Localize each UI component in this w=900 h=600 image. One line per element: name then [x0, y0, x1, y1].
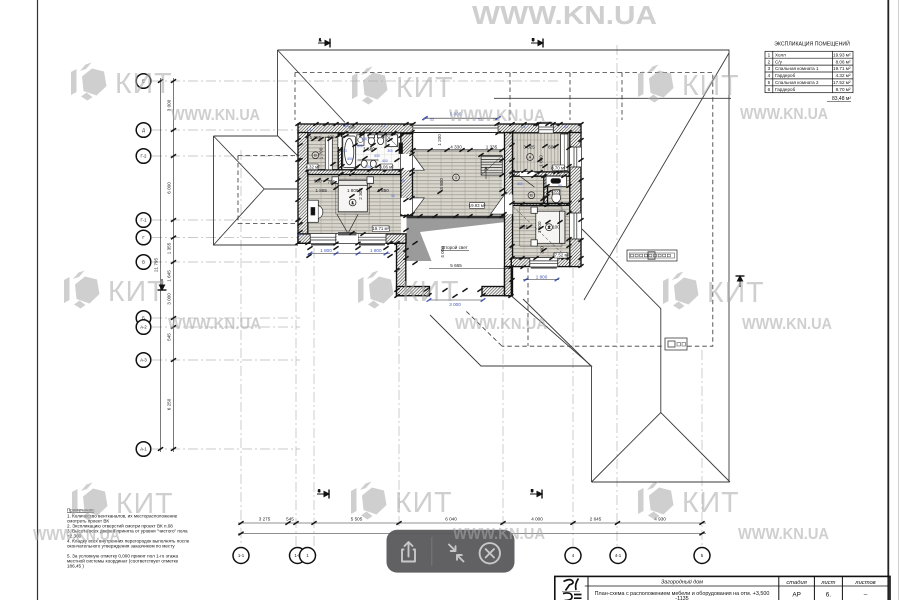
svg-text:Гардероб: Гардероб: [775, 87, 796, 92]
svg-text:21 795: 21 795: [154, 258, 159, 272]
svg-text:8.70 м²: 8.70 м²: [836, 87, 851, 92]
svg-text:3 000: 3 000: [167, 293, 172, 305]
svg-text:А-1: А-1: [140, 447, 147, 452]
svg-text:Д: Д: [142, 128, 145, 133]
svg-text:19.71 м²: 19.71 м²: [833, 66, 851, 71]
svg-text:Спальная комната 2: Спальная комната 2: [775, 80, 819, 85]
svg-text:2 100: 2 100: [548, 225, 560, 230]
svg-text:1 355: 1 355: [167, 242, 172, 254]
svg-text:1 800: 1 800: [320, 248, 332, 253]
svg-text:03: 03: [564, 125, 568, 129]
svg-text:600: 600: [343, 124, 349, 128]
svg-text:650: 650: [347, 157, 353, 161]
svg-text:5 665: 5 665: [450, 263, 462, 268]
svg-text:8.70 м²: 8.70 м²: [551, 165, 566, 170]
svg-text:1 800: 1 800: [370, 248, 382, 253]
svg-text:1 855: 1 855: [315, 188, 327, 193]
svg-text:КИТ: КИТ: [395, 487, 453, 519]
svg-text:6.: 6.: [826, 592, 832, 599]
svg-text:535: 535: [541, 196, 546, 204]
svg-text:19.93 м²: 19.93 м²: [469, 203, 486, 208]
svg-text:3 025: 3 025: [523, 145, 535, 150]
svg-text:1 285: 1 285: [310, 135, 322, 140]
svg-text:В: В: [142, 260, 145, 265]
svg-text:лист: лист: [820, 580, 835, 586]
svg-text:КИТ: КИТ: [682, 70, 740, 102]
svg-text:WWW.KN.UA: WWW.KN.UA: [455, 316, 547, 333]
svg-text:1 200: 1 200: [437, 134, 442, 146]
svg-text:Г-2: Г-2: [141, 154, 148, 159]
svg-text:1-3: 1-3: [381, 124, 386, 128]
svg-text:Холл: Холл: [775, 52, 786, 57]
svg-text:КИТ: КИТ: [115, 68, 173, 100]
svg-text:5: 5: [768, 80, 771, 85]
svg-text:окончательного утверждения зак: окончательного утверждения заказчиком по…: [67, 544, 175, 549]
svg-text:1: 1: [768, 52, 771, 57]
svg-text:1-3: 1-3: [307, 128, 312, 132]
svg-text:4 330: 4 330: [450, 145, 462, 150]
svg-text:WWW.KN.UA: WWW.KN.UA: [33, 527, 120, 544]
svg-text:1 335: 1 335: [486, 145, 498, 150]
svg-text:1 800: 1 800: [538, 155, 543, 167]
svg-text:300: 300: [387, 149, 393, 153]
svg-text:КИТ: КИТ: [116, 488, 174, 520]
svg-text:600: 600: [548, 145, 556, 150]
svg-text:00: 00: [297, 233, 301, 237]
svg-text:90: 90: [391, 194, 395, 198]
svg-text:1 645: 1 645: [167, 270, 172, 282]
svg-text:600: 600: [357, 144, 363, 148]
svg-text:4 000: 4 000: [440, 246, 445, 258]
svg-text:600: 600: [517, 182, 523, 186]
svg-text:8.06 м²: 8.06 м²: [836, 59, 851, 64]
svg-text:9.06: 9.06: [365, 165, 371, 169]
svg-text:90: 90: [558, 184, 562, 188]
svg-text:КИТ: КИТ: [396, 72, 454, 104]
svg-text:1-3: 1-3: [521, 125, 526, 129]
svg-text:Гардероб: Гардероб: [775, 73, 796, 78]
svg-text:03: 03: [430, 118, 434, 122]
svg-text:3 800: 3 800: [439, 178, 444, 190]
svg-text:ЭКСПЛИКАЦИЯ ПОМЕЩЕНИЙ: ЭКСПЛИКАЦИЯ ПОМЕЩЕНИЙ: [774, 40, 850, 48]
svg-text:WWW.KN.UA: WWW.KN.UA: [740, 106, 828, 123]
svg-text:19.93 м²: 19.93 м²: [833, 52, 851, 57]
svg-text:17.52 м²: 17.52 м²: [552, 253, 569, 258]
svg-text:600: 600: [365, 127, 372, 132]
svg-text:2 300: 2 300: [358, 188, 363, 200]
svg-text:1500: 1500: [551, 188, 561, 193]
svg-text:455: 455: [361, 137, 367, 141]
svg-text:2 645: 2 645: [590, 517, 602, 522]
svg-text:600: 600: [374, 154, 380, 158]
svg-text:600: 600: [382, 159, 388, 163]
svg-text:545: 545: [286, 517, 294, 522]
svg-text:КИТ: КИТ: [707, 277, 765, 309]
svg-text:5 505: 5 505: [351, 517, 363, 522]
svg-text:6: 6: [768, 87, 771, 92]
svg-text:795: 795: [327, 179, 335, 184]
svg-text:-1135: -1135: [675, 596, 688, 600]
svg-text:4.32 м²: 4.32 м²: [836, 73, 851, 78]
svg-text:1-1: 1-1: [238, 553, 245, 558]
svg-text:С/у: С/у: [775, 59, 783, 64]
svg-text:листов: листов: [854, 580, 875, 586]
svg-text:WWW.KN.UA: WWW.KN.UA: [742, 316, 832, 333]
svg-text:КИТ: КИТ: [402, 276, 460, 308]
svg-text:600: 600: [349, 125, 356, 130]
svg-text:3: 3: [768, 66, 771, 71]
svg-text:1 700: 1 700: [319, 147, 324, 159]
svg-text:–: –: [864, 592, 868, 599]
svg-text:4 000: 4 000: [531, 517, 543, 522]
svg-text:АР: АР: [792, 592, 801, 599]
svg-text:Б: Б: [530, 193, 533, 198]
svg-text:КИТ: КИТ: [682, 487, 740, 519]
svg-text:WWW.KN.UA: WWW.KN.UA: [168, 316, 261, 333]
svg-text:1 800: 1 800: [536, 275, 548, 280]
svg-text:17.52 м²: 17.52 м²: [833, 80, 851, 85]
svg-text:6 000: 6 000: [167, 182, 172, 194]
svg-text:8.06 м²: 8.06 м²: [379, 164, 394, 169]
svg-text:WWW.KN.UA: WWW.KN.UA: [453, 526, 545, 543]
svg-text:Спальная комната 1: Спальная комната 1: [775, 66, 819, 71]
svg-text:390: 390: [539, 246, 544, 254]
svg-text:2: 2: [768, 59, 771, 64]
svg-text:186,45 ): 186,45 ): [67, 564, 84, 569]
svg-text:4-1: 4-1: [615, 553, 622, 558]
svg-text:1 800: 1 800: [537, 221, 542, 233]
svg-text:525: 525: [520, 225, 528, 230]
svg-text:45: 45: [401, 179, 405, 183]
svg-text:1 580: 1 580: [363, 147, 375, 152]
svg-text:Второй свет: Второй свет: [442, 244, 469, 250]
svg-text:400: 400: [327, 134, 335, 139]
svg-text:В: В: [314, 153, 317, 158]
svg-text:03: 03: [343, 149, 347, 153]
svg-text:А-2: А-2: [140, 325, 147, 330]
svg-text:стадия: стадия: [786, 580, 806, 586]
svg-text:545: 545: [167, 333, 172, 341]
svg-text:980: 980: [314, 179, 322, 184]
svg-text:Г-1: Г-1: [141, 218, 148, 223]
svg-text:4: 4: [768, 73, 771, 78]
svg-text:Загородный дом: Загородный дом: [661, 579, 703, 586]
svg-text:А-3: А-3: [140, 358, 147, 363]
svg-text:А: А: [529, 155, 532, 160]
svg-text:4.32 м²: 4.32 м²: [305, 164, 320, 169]
svg-text:1 850: 1 850: [377, 188, 389, 193]
svg-text:3 275: 3 275: [259, 517, 271, 522]
svg-text:WWW.KN.UA: WWW.KN.UA: [449, 107, 545, 125]
svg-text:WWW.KN.UA: WWW.KN.UA: [738, 526, 829, 543]
svg-text:19.71 м²: 19.71 м²: [372, 226, 389, 231]
svg-text:WWW.KN.UA: WWW.KN.UA: [171, 107, 260, 124]
svg-text:WWW.KN.UA: WWW.KN.UA: [472, 0, 657, 30]
svg-text:6 250: 6 250: [167, 398, 172, 410]
svg-text:КИТ: КИТ: [108, 276, 166, 308]
